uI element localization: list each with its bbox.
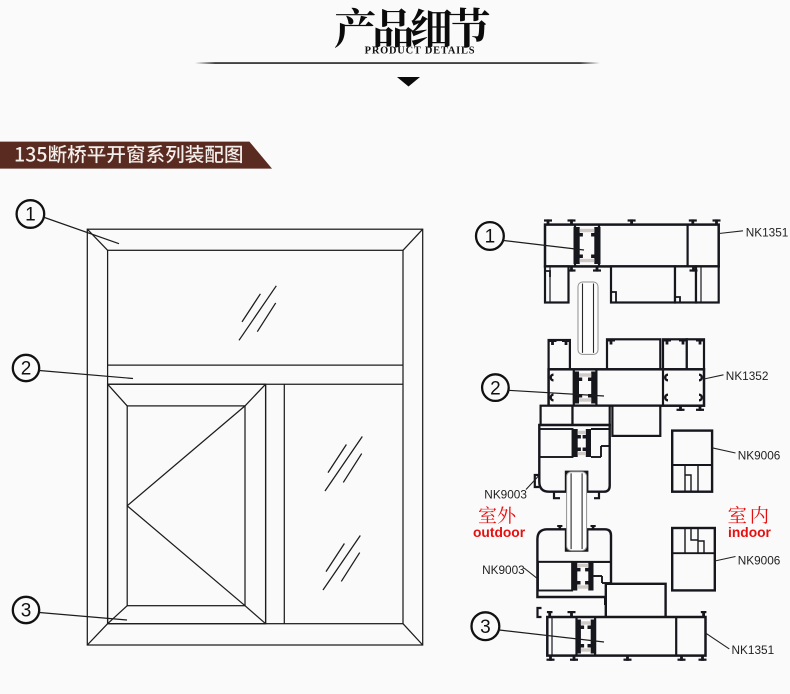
svg-text:2: 2 xyxy=(490,378,501,399)
svg-text:NK9003: NK9003 xyxy=(482,563,525,577)
svg-text:2: 2 xyxy=(21,359,32,380)
svg-text:NK1351: NK1351 xyxy=(732,643,775,657)
svg-text:NK1352: NK1352 xyxy=(726,369,769,383)
svg-text:NK1351: NK1351 xyxy=(746,226,789,240)
svg-text:1: 1 xyxy=(25,205,36,226)
svg-text:3: 3 xyxy=(21,601,32,622)
svg-text:indoor: indoor xyxy=(728,525,772,540)
svg-text:NK9003: NK9003 xyxy=(484,487,527,501)
svg-text:NK9006: NK9006 xyxy=(738,553,781,567)
svg-text:3: 3 xyxy=(480,617,491,638)
svg-text:NK9006: NK9006 xyxy=(738,448,781,462)
svg-text:outdoor: outdoor xyxy=(473,525,526,540)
svg-text:1: 1 xyxy=(485,227,496,248)
svg-text:PRODUCT DETAILS: PRODUCT DETAILS xyxy=(365,46,476,57)
